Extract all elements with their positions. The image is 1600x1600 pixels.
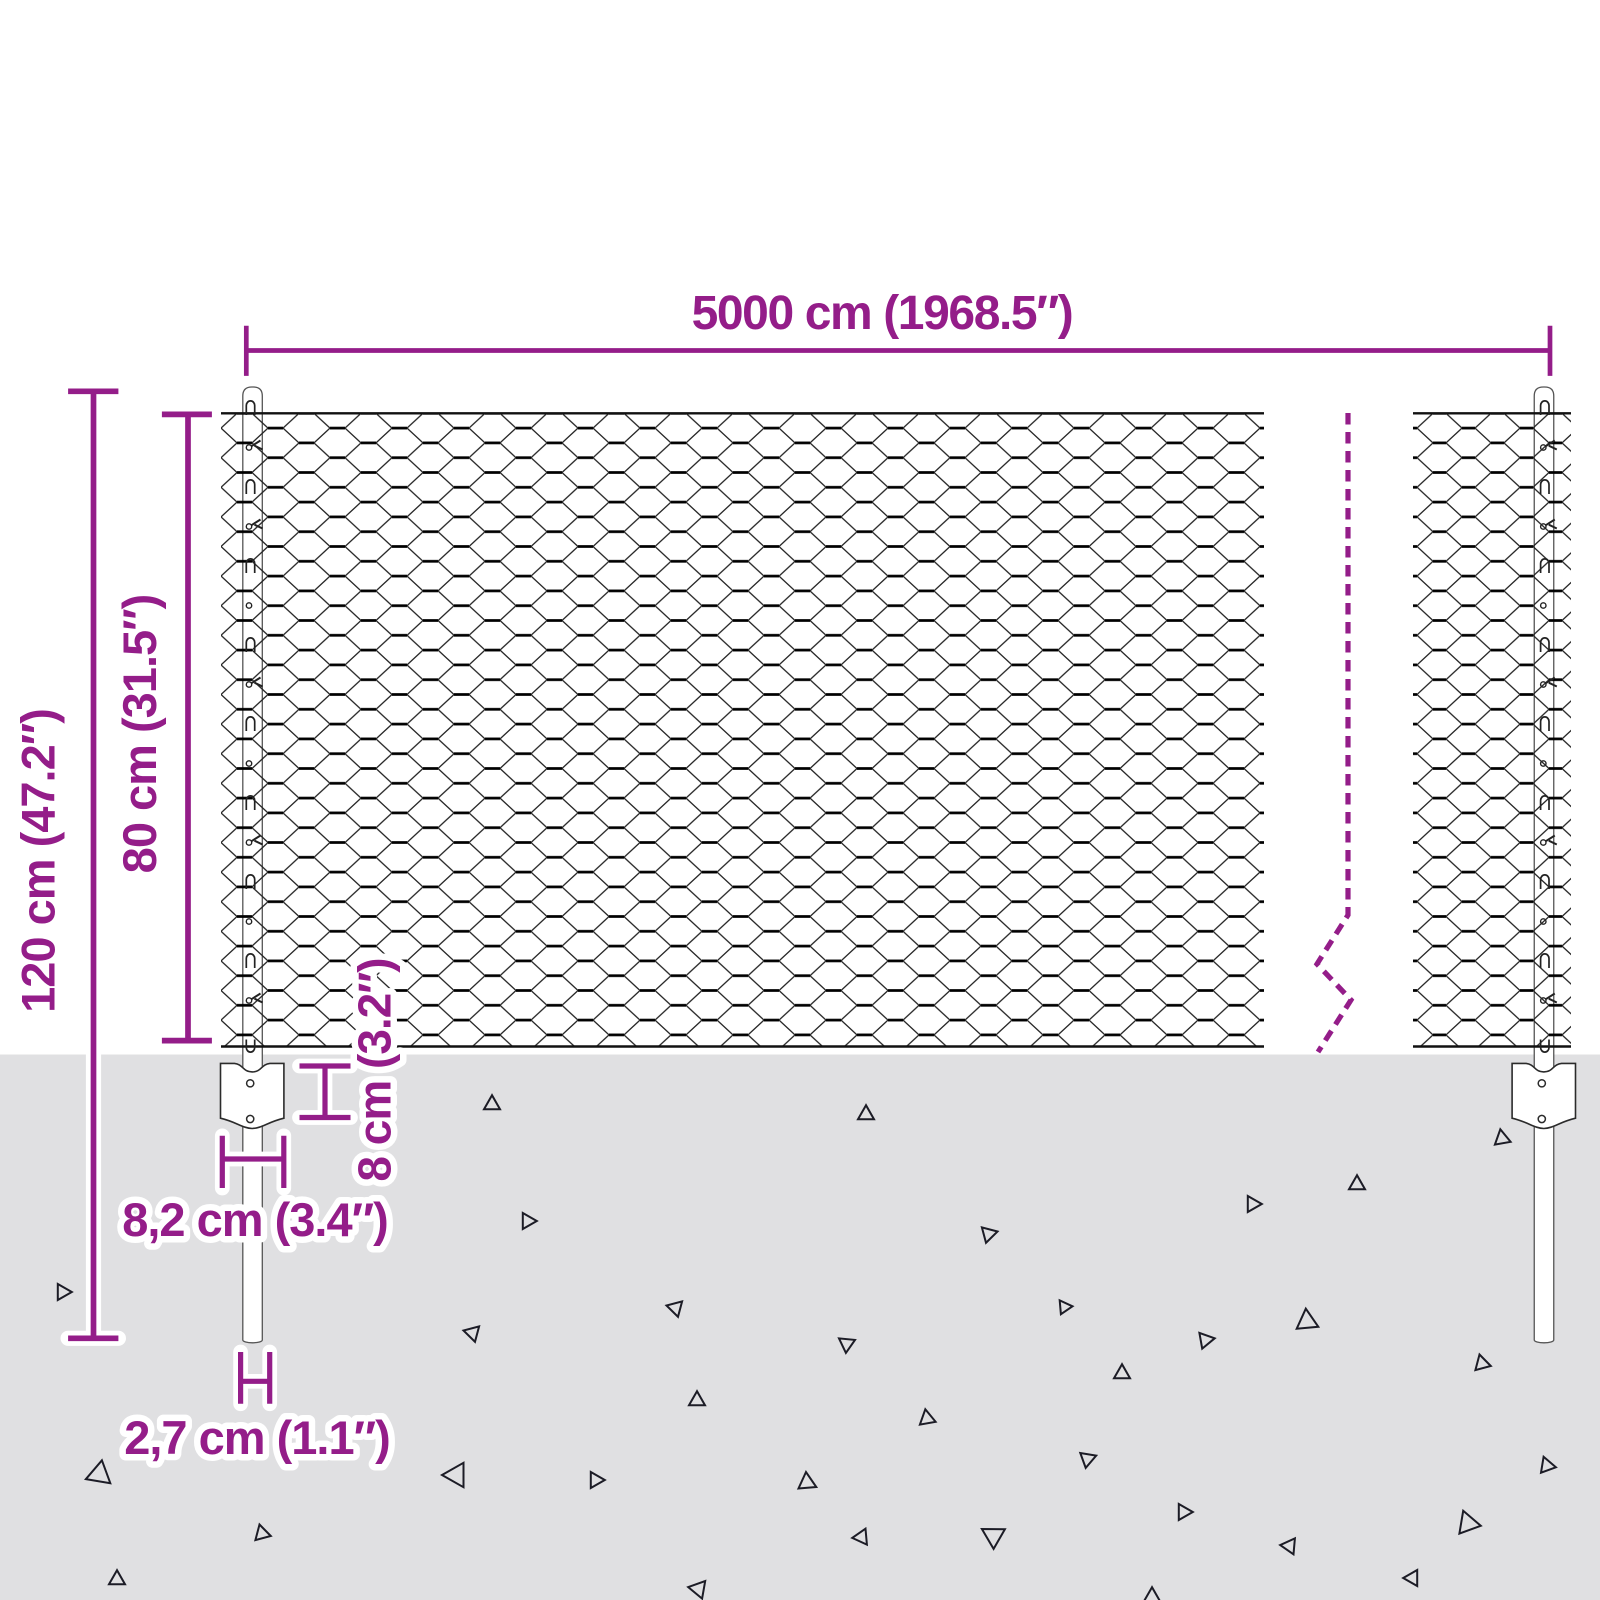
svg-text:80 cm (31.5″): 80 cm (31.5″) bbox=[113, 595, 166, 874]
svg-text:2,7 cm (1.1″): 2,7 cm (1.1″) bbox=[124, 1411, 390, 1464]
svg-text:8 cm (3.2″): 8 cm (3.2″) bbox=[349, 958, 401, 1181]
svg-text:5000 cm (1968.5″): 5000 cm (1968.5″) bbox=[692, 287, 1073, 340]
svg-text:120 cm (47.2″): 120 cm (47.2″) bbox=[12, 709, 65, 1013]
svg-text:8,2 cm (3.4″): 8,2 cm (3.4″) bbox=[122, 1193, 388, 1246]
